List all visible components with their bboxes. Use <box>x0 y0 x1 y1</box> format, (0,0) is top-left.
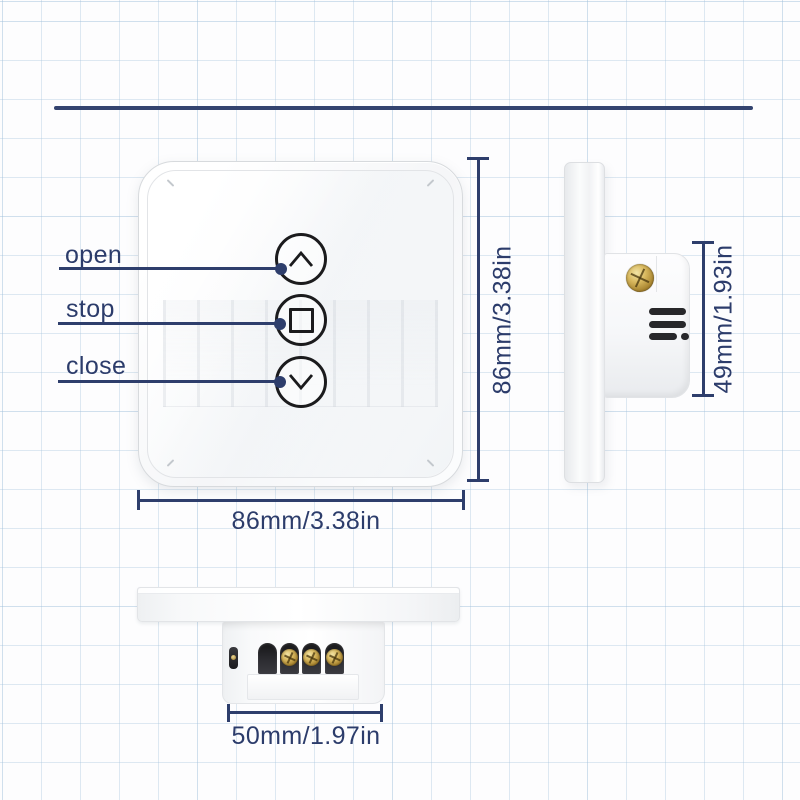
module-width-dim-cap-left <box>227 704 230 722</box>
chevron-down-icon <box>286 372 316 392</box>
leader-line-stop <box>58 322 280 325</box>
leader-dot-close <box>274 376 286 388</box>
terminal-port <box>325 643 344 674</box>
height-dim-cap-bottom <box>467 479 489 482</box>
width-dim-text: 86mm/3.38in <box>232 507 381 536</box>
diagram-canvas: open stop close 86mm/3.38in 86mm/3.38in <box>0 0 800 800</box>
terminal-port <box>280 643 299 674</box>
terminal-cover <box>247 674 359 700</box>
module-width-dim-line <box>229 711 382 714</box>
terminal-screw-icon <box>303 649 320 666</box>
leader-line-close <box>58 380 280 383</box>
height-dim-line <box>477 158 480 482</box>
depth-dim-line <box>702 242 705 397</box>
leader-dot-open <box>275 263 287 275</box>
top-border-line <box>54 106 753 110</box>
height-dim-text: 86mm/3.38in <box>489 246 518 395</box>
depth-dim-text: 49mm/1.93in <box>710 245 739 394</box>
leader-dot-stop <box>274 318 286 330</box>
terminal-port <box>258 643 277 674</box>
width-dim-cap-left <box>137 490 140 510</box>
screw-recess-edge <box>656 256 657 292</box>
mounting-screw-icon <box>626 264 654 292</box>
module-width-dim-text: 50mm/1.97in <box>232 722 381 751</box>
leader-line-open <box>59 267 281 270</box>
vent-slot-icon <box>649 333 677 340</box>
faceplate-edge-highlight <box>138 588 459 594</box>
vent-slot-icon <box>649 308 686 315</box>
stop-square-icon <box>289 308 314 333</box>
depth-dim-cap-bottom <box>692 394 714 397</box>
chevron-up-icon <box>286 249 316 269</box>
open-button <box>275 233 327 285</box>
bottom-faceplate <box>137 587 460 622</box>
width-dim-line <box>138 499 465 502</box>
side-terminal-screw-icon <box>229 647 238 669</box>
label-stop: stop <box>66 295 115 324</box>
height-dim-cap-top <box>467 157 489 160</box>
side-faceplate <box>564 162 605 483</box>
label-open: open <box>65 241 122 270</box>
module-width-dim-cap-right <box>380 704 383 722</box>
vent-slot-icon <box>681 333 689 340</box>
label-close: close <box>66 352 126 381</box>
terminal-screw-icon <box>281 649 298 666</box>
terminal-screw-icon <box>326 649 343 666</box>
width-dim-cap-right <box>462 490 465 510</box>
vent-slot-icon <box>649 321 686 328</box>
terminal-port <box>302 643 321 674</box>
